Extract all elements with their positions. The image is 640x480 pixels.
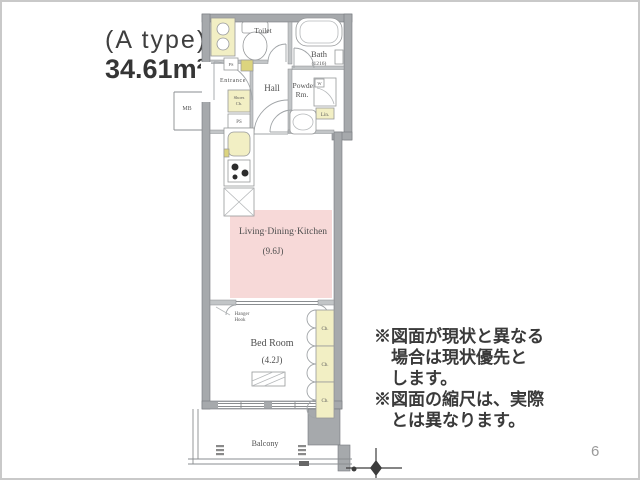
ldk-size-label: (9.6J) — [263, 246, 284, 256]
note-line: ※図面が現状と異なる — [374, 326, 544, 347]
note-line: とは異なります。 — [374, 410, 544, 431]
kitchen-door-arc — [254, 100, 288, 134]
bath-room: Bath (1216) — [296, 18, 343, 67]
floorplan-page: (A type) 34.61m² — [0, 0, 640, 480]
bedroom: Hanger Hook Bed Room (4.2J) — [216, 307, 294, 386]
svg-text:Lin.: Lin. — [321, 113, 329, 118]
entrance-label: Entrance — [220, 78, 246, 84]
bathtub-icon — [296, 18, 342, 46]
drain-mark — [299, 461, 309, 466]
compass-cross-icon — [346, 448, 402, 480]
bedroom-size-label: (4.2J) — [262, 355, 283, 365]
floorplan-drawing: Toilet Bath (1216) Entrance PS Shoes Cb.… — [2, 2, 640, 480]
page-number: 6 — [591, 443, 599, 460]
svg-text:PS: PS — [236, 120, 242, 125]
toilet-door-arc — [268, 44, 286, 62]
bath-label: Bath — [311, 49, 328, 59]
meter-box: MB — [174, 92, 202, 130]
hall-label: Hall — [264, 83, 280, 93]
toilet-label: Toilet — [254, 26, 272, 35]
svg-text:Hook: Hook — [234, 318, 246, 323]
toilet-room: Toilet — [211, 18, 273, 60]
svg-text:Powder: Powder — [293, 81, 316, 90]
entrance-area: Entrance PS Shoes Cb. PS — [220, 58, 253, 128]
ldk-label: Living·Dining·Kitchen — [239, 227, 327, 237]
kitchen-sink-icon — [228, 132, 250, 156]
svg-text:PS: PS — [228, 62, 234, 67]
svg-text:Shoes: Shoes — [234, 95, 245, 100]
svg-text:Cb.: Cb. — [321, 363, 328, 368]
bath-size-label: (1216) — [312, 60, 327, 67]
powder-room: Powder Rm. W Lin. — [290, 78, 336, 134]
utility-box — [241, 60, 253, 71]
svg-text:Cb.: Cb. — [321, 327, 328, 332]
bedroom-closets: Cb. Cb. Cb. — [307, 310, 334, 418]
toilet-bowl-icon — [243, 32, 267, 60]
svg-text:Cb.: Cb. — [236, 101, 242, 106]
note-line: 場合は現状優先と — [374, 347, 544, 368]
svg-text:Hanger: Hanger — [235, 312, 250, 317]
svg-text:Cb.: Cb. — [321, 399, 328, 404]
note-line: します。 — [374, 368, 544, 389]
balcony-label: Balcony — [252, 439, 279, 448]
disclaimer-notes: ※図面が現状と異なる 場合は現状優先と します。 ※図面の縮尺は、実際 とは異な… — [374, 326, 544, 431]
laundry-hook-mark — [216, 445, 224, 455]
laundry-hook-mark — [298, 445, 306, 455]
kitchen-counter — [224, 128, 254, 216]
entrance-door-opening — [201, 62, 211, 102]
svg-text:Rm.: Rm. — [296, 90, 309, 99]
note-line: ※図面の縮尺は、実際 — [374, 389, 544, 410]
svg-text:MB: MB — [182, 106, 191, 112]
bedroom-label: Bed Room — [250, 338, 293, 349]
